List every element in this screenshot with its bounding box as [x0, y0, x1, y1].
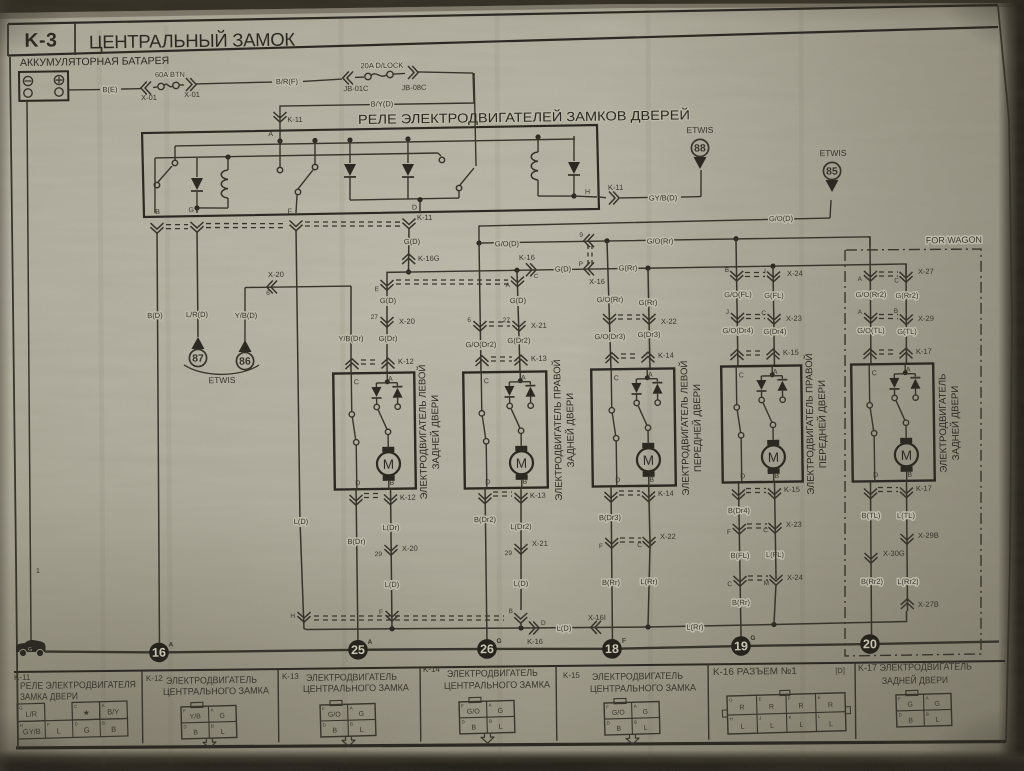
svg-text:ЭЛЕКТРОДВИГАТЕЛЬ: ЭЛЕКТРОДВИГАТЕЛЬ [447, 668, 538, 680]
svg-text:A: A [858, 276, 863, 283]
svg-text:K-16G: K-16G [418, 254, 440, 263]
svg-text:27: 27 [371, 314, 379, 321]
svg-text:F: F [622, 638, 626, 645]
svg-text:G/O(Dr4): G/O(Dr4) [722, 326, 753, 335]
svg-text:Y/B(D): Y/B(D) [235, 311, 258, 320]
svg-text:G(D): G(D) [510, 296, 527, 305]
svg-text:K-14: K-14 [423, 665, 441, 674]
svg-text:D: D [873, 472, 878, 479]
svg-text:X-21: X-21 [532, 539, 548, 548]
svg-text:L: L [221, 729, 225, 736]
svg-text:H: H [20, 723, 23, 728]
svg-text:X-20: X-20 [399, 317, 415, 326]
svg-text:B(Dr3): B(Dr3) [599, 513, 622, 522]
svg-text:B: B [725, 267, 729, 274]
svg-text:G: G [643, 709, 649, 716]
svg-text:G/O(Dr3): G/O(Dr3) [594, 332, 625, 341]
svg-text:16: 16 [152, 646, 166, 660]
svg-text:B: B [649, 477, 654, 484]
svg-text:G(TL): G(TL) [897, 327, 917, 336]
svg-text:L: L [360, 727, 364, 734]
svg-text:GY/B: GY/B [23, 727, 41, 736]
svg-text:K-13: K-13 [530, 491, 546, 500]
svg-text:F: F [322, 706, 325, 711]
svg-text:L(Rr2): L(Rr2) [897, 577, 919, 586]
svg-text:K-15: K-15 [784, 485, 800, 494]
svg-text:G: G [28, 647, 32, 653]
svg-text:C: C [534, 274, 539, 280]
svg-text:L(D): L(D) [385, 580, 400, 589]
svg-text:C: C [872, 370, 877, 377]
svg-text:G(D): G(D) [555, 264, 572, 273]
svg-text:ЦЕНТРАЛЬНОГО ЗАМКА: ЦЕНТРАЛЬНОГО ЗАМКА [590, 683, 697, 695]
svg-text:G(Dr): G(Dr) [379, 334, 398, 343]
svg-text:G(D): G(D) [404, 237, 421, 246]
svg-text:B: B [616, 726, 621, 733]
svg-text:E: E [758, 697, 761, 702]
svg-text:A: A [521, 375, 526, 382]
svg-text:A: A [350, 706, 353, 711]
svg-text:B/R(F): B/R(F) [276, 77, 299, 86]
svg-text:GY/B(D): GY/B(D) [649, 193, 678, 202]
svg-text:ЭЛЕКТРОДВИГАТЕЛЬ: ЭЛЕКТРОДВИГАТЕЛЬ [592, 671, 683, 683]
svg-text:B: B [908, 717, 913, 724]
svg-text:A: A [210, 708, 213, 713]
svg-text:B(TL): B(TL) [862, 511, 881, 520]
svg-text:M: M [516, 456, 527, 471]
svg-text:A: A [368, 639, 373, 646]
svg-text:ЗАМКА ДВЕРИ: ЗАМКА ДВЕРИ [20, 691, 78, 703]
svg-text:ЦЕНТРАЛЬНОГО ЗАМКА: ЦЕНТРАЛЬНОГО ЗАМКА [163, 686, 270, 698]
svg-text:★: ★ [83, 708, 90, 717]
svg-text:X-01: X-01 [141, 93, 157, 102]
svg-text:L: L [57, 726, 61, 735]
svg-text:X-16I: X-16I [588, 613, 606, 622]
svg-text:ЭЛЕКТРОДВИГАТЕЛЬ ПРАВОЙ: ЭЛЕКТРОДВИГАТЕЛЬ ПРАВОЙ [803, 353, 817, 494]
svg-text:B: B [155, 209, 160, 216]
svg-text:B: B [926, 712, 929, 717]
svg-text:G/O(Dr2): G/O(Dr2) [465, 340, 496, 349]
svg-text:H: H [730, 716, 733, 721]
svg-text:G/O: G/O [612, 709, 626, 716]
svg-text:ПЕРЕДНЕЙ ДВЕРИ: ПЕРЕДНЕЙ ДВЕРИ [691, 384, 704, 472]
svg-text:K-16: K-16 [527, 637, 543, 646]
svg-text:G/O(D): G/O(D) [769, 214, 794, 223]
svg-text:X-20: X-20 [268, 270, 284, 279]
svg-text:27: 27 [503, 317, 511, 324]
svg-text:88: 88 [694, 142, 706, 154]
svg-text:F: F [379, 609, 383, 616]
svg-text:G: G [359, 711, 365, 718]
svg-text:K-17: K-17 [916, 484, 932, 493]
svg-text:R: R [828, 702, 833, 709]
svg-text:D: D [541, 620, 546, 627]
svg-text:B: B [389, 480, 394, 487]
svg-text:K-11: K-11 [417, 213, 432, 222]
svg-text:АККУМУЛЯТОРНАЯ БАТАРЕЯ: АККУМУЛЯТОРНАЯ БАТАРЕЯ [20, 55, 169, 69]
svg-text:B(E): B(E) [102, 85, 118, 94]
svg-text:X-24: X-24 [787, 269, 803, 278]
svg-text:G(Rr): G(Rr) [619, 263, 638, 272]
svg-text:L(Dr): L(Dr) [382, 523, 400, 532]
svg-text:G(Dr2): G(Dr2) [507, 336, 531, 345]
svg-text:ЭЛЕКТРОДВИГАТЕЛЬ ЛЕВОЙ: ЭЛЕКТРОДВИГАТЕЛЬ ЛЕВОЙ [678, 361, 692, 496]
svg-text:B: B [489, 719, 492, 724]
svg-text:G/O(TL): G/O(TL) [857, 326, 885, 335]
svg-text:G/O: G/O [467, 708, 481, 715]
svg-text:K-13: K-13 [531, 354, 547, 363]
svg-text:B: B [350, 722, 353, 727]
svg-text:G: G [219, 713, 225, 720]
svg-text:A: A [506, 282, 511, 289]
svg-text:ETWIS: ETWIS [819, 148, 846, 158]
svg-text:20: 20 [863, 637, 877, 651]
svg-text:F: F [727, 529, 731, 536]
svg-text:C: C [763, 527, 768, 534]
svg-text:X-23: X-23 [786, 314, 802, 323]
svg-text:G(D): G(D) [380, 296, 397, 305]
svg-text:F: F [183, 708, 186, 713]
svg-text:G/O(Rr2): G/O(Rr2) [855, 290, 886, 299]
svg-text:26: 26 [480, 642, 494, 656]
svg-text:F: F [599, 543, 603, 550]
svg-text:L/R(D): L/R(D) [186, 310, 209, 319]
svg-text:R: R [769, 704, 774, 711]
svg-text:G: G [84, 726, 90, 735]
svg-text:C: C [484, 378, 489, 385]
svg-text:M: M [643, 453, 654, 468]
svg-text:G(Rr2): G(Rr2) [895, 291, 919, 300]
svg-text:РЕЛЕ ЭЛЕКТРОДВИГАТЕЛЯ: РЕЛЕ ЭЛЕКТРОДВИГАТЕЛЯ [20, 679, 136, 692]
svg-text:K-16 РАЗЪЕМ №1: K-16 РАЗЪЕМ №1 [713, 666, 797, 678]
svg-text:K-11: K-11 [287, 115, 302, 124]
svg-text:I: I [764, 268, 766, 275]
svg-text:D: D [355, 480, 360, 487]
svg-text:R: R [739, 705, 744, 712]
svg-text:L: L [499, 724, 503, 731]
svg-text:G: G [907, 701, 913, 708]
svg-text:X-30G: X-30G [883, 549, 905, 558]
svg-text:ETWIS: ETWIS [208, 375, 235, 385]
svg-text:G/O: G/O [328, 711, 342, 718]
svg-text:G: G [934, 701, 940, 708]
svg-text:A: A [773, 369, 778, 376]
svg-text:19: 19 [734, 639, 748, 653]
svg-text:D: D [740, 473, 745, 480]
svg-text:Y/B: Y/B [190, 713, 202, 720]
svg-text:B: B [634, 720, 637, 725]
svg-text:ЦЕНТРАЛЬНОГО ЗАМКА: ЦЕНТРАЛЬНОГО ЗАМКА [444, 679, 551, 691]
svg-text:JB-01C: JB-01C [343, 84, 369, 93]
svg-text:ПЕРЕДНЕЙ ДВЕРИ: ПЕРЕДНЕЙ ДВЕРИ [816, 380, 829, 468]
svg-text:C: C [739, 372, 744, 379]
svg-text:B: B [522, 479, 527, 486]
svg-text:25: 25 [351, 643, 365, 657]
svg-text:D: D [412, 205, 417, 212]
svg-text:C: C [354, 379, 359, 386]
svg-text:A: A [489, 703, 492, 708]
svg-text:B: B [509, 608, 513, 615]
svg-text:86: 86 [239, 356, 251, 368]
svg-text:B(FL): B(FL) [731, 551, 750, 560]
svg-text:B: B [102, 721, 105, 726]
svg-text:G(Rr): G(Rr) [639, 298, 658, 307]
svg-text:F: F [47, 722, 50, 727]
svg-text:B: B [332, 728, 337, 735]
svg-text:X-16: X-16 [589, 277, 605, 286]
svg-text:L: L [799, 722, 803, 729]
svg-text:B: B [774, 473, 779, 480]
svg-text:ЭЛЕКТРОДВИГАТЕЛЬ ЛЕВОЙ: ЭЛЕКТРОДВИГАТЕЛЬ ЛЕВОЙ [416, 364, 430, 499]
svg-text:60A BTN: 60A BTN [155, 70, 185, 79]
svg-text:E: E [375, 286, 380, 293]
svg-text:6: 6 [467, 317, 471, 324]
svg-text:B: B [907, 472, 912, 479]
svg-text:1: 1 [36, 568, 40, 575]
svg-text:A: A [906, 367, 911, 374]
svg-text:X-27B: X-27B [918, 600, 939, 609]
svg-text:Y/B(Dr): Y/B(Dr) [338, 334, 364, 343]
svg-text:L(D): L(D) [514, 579, 529, 588]
svg-text:X-24: X-24 [787, 573, 803, 582]
svg-text:K: K [789, 715, 792, 720]
svg-text:B/Y(D): B/Y(D) [371, 99, 394, 108]
svg-text:G(Dr4): G(Dr4) [763, 327, 787, 336]
svg-text:G: G [750, 635, 755, 642]
svg-text:A: A [268, 131, 273, 138]
svg-text:G: G [496, 638, 501, 645]
svg-text:B(Dr): B(Dr) [347, 537, 366, 546]
svg-text:X-23: X-23 [786, 520, 802, 529]
svg-text:G/O(Rr): G/O(Rr) [597, 295, 624, 304]
svg-text:K-15: K-15 [563, 671, 581, 680]
svg-text:G: G [19, 705, 23, 710]
svg-text:B(Dr2): B(Dr2) [474, 515, 497, 524]
svg-text:X-29B: X-29B [918, 531, 939, 540]
svg-text:L/R: L/R [25, 709, 38, 718]
svg-text:B(Rr): B(Rr) [732, 598, 751, 607]
svg-text:G/O(D): G/O(D) [495, 239, 520, 248]
svg-text:X-27: X-27 [918, 267, 934, 276]
svg-text:R: R [798, 703, 803, 710]
svg-text:ЦЕНТРАЛЬНОГО ЗАМКА: ЦЕНТРАЛЬНОГО ЗАМКА [303, 683, 410, 695]
svg-text:C: C [614, 375, 619, 382]
svg-text:X-01: X-01 [184, 90, 200, 99]
svg-text:G/O(FL): G/O(FL) [724, 290, 752, 299]
svg-text:X-22: X-22 [660, 532, 676, 541]
svg-text:L: L [829, 721, 833, 728]
svg-text:L(Rr): L(Rr) [640, 577, 658, 586]
svg-text:18: 18 [605, 642, 619, 656]
svg-text:F: F [606, 704, 609, 709]
svg-text:L: L [740, 724, 744, 731]
svg-text:C: C [727, 581, 732, 588]
svg-text:ЗАДНЕЙ ДВЕРИ: ЗАДНЕЙ ДВЕРИ [882, 674, 948, 687]
svg-text:G: G [729, 697, 733, 702]
svg-text:C: C [761, 310, 766, 317]
svg-text:K-17: K-17 [916, 347, 932, 356]
svg-text:X-29: X-29 [918, 314, 934, 323]
svg-text:A: A [169, 641, 174, 648]
svg-text:C: C [894, 277, 899, 284]
svg-text:B/Y: B/Y [107, 707, 119, 716]
svg-text:ЭЛЕКТРОДВИГАТЕЛЬ ПРАВОЙ: ЭЛЕКТРОДВИГАТЕЛЬ ПРАВОЙ [551, 359, 565, 500]
svg-text:B(Dr4): B(Dr4) [728, 506, 751, 515]
svg-text:F: F [288, 208, 292, 215]
svg-text:L(D): L(D) [294, 517, 309, 526]
svg-text:B(Rr): B(Rr) [602, 578, 621, 587]
svg-text:K-16: K-16 [519, 253, 535, 262]
svg-text:K-3: K-3 [24, 29, 57, 51]
svg-text:20A D/LOCK: 20A D/LOCK [360, 61, 403, 71]
svg-text:M: M [768, 450, 779, 465]
svg-text:D: D [615, 477, 620, 484]
svg-text:H: H [585, 189, 590, 196]
svg-text:K-13: K-13 [282, 672, 300, 681]
svg-text:ЗАДНЕЙ ДВЕРИ: ЗАДНЕЙ ДВЕРИ [564, 393, 577, 468]
svg-text:FOR WAGON: FOR WAGON [926, 235, 982, 246]
svg-text:K-11: K-11 [608, 183, 623, 192]
svg-text:G(Dr3): G(Dr3) [637, 330, 661, 339]
svg-text:M: M [901, 448, 912, 463]
svg-text:G(FL): G(FL) [764, 291, 784, 300]
svg-text:X-21: X-21 [531, 321, 547, 330]
svg-text:A: A [858, 309, 863, 316]
svg-text:J: J [726, 309, 729, 316]
svg-text:A: A [102, 703, 105, 708]
svg-text:L(Rr): L(Rr) [686, 622, 704, 631]
svg-text:A: A [388, 376, 393, 383]
svg-text:K-17 ЭЛЕКТРОДВИГАТЕЛЬ: K-17 ЭЛЕКТРОДВИГАТЕЛЬ [858, 661, 972, 674]
svg-text:A: A [634, 704, 637, 709]
svg-text:B: B [111, 725, 116, 734]
svg-text:L: L [644, 725, 648, 732]
svg-text:K-14: K-14 [658, 489, 674, 498]
svg-text:ЦЕНТРАЛЬНЫЙ ЗАМОК: ЦЕНТРАЛЬНЫЙ ЗАМОК [89, 29, 296, 53]
svg-text:B(D): B(D) [147, 311, 163, 320]
svg-text:L: L [770, 723, 774, 730]
svg-text:K-14: K-14 [658, 351, 674, 360]
svg-text:ЗАДНЕЙ ДВЕРИ: ЗАДНЕЙ ДВЕРИ [949, 386, 962, 461]
svg-text:29: 29 [505, 550, 513, 557]
svg-text:G: G [497, 708, 503, 715]
svg-text:L: L [936, 717, 940, 724]
svg-text:B: B [193, 729, 198, 736]
svg-text:X-22: X-22 [661, 317, 677, 326]
svg-text:F: F [461, 703, 464, 708]
svg-text:P: P [579, 261, 583, 268]
svg-text:F: F [898, 696, 901, 701]
svg-text:J: J [759, 716, 761, 721]
svg-text:JB-08C: JB-08C [401, 83, 427, 92]
svg-text:29: 29 [375, 551, 383, 558]
svg-text:B: B [471, 724, 476, 731]
svg-text:L(TL): L(TL) [897, 511, 916, 520]
svg-text:X-20: X-20 [402, 544, 418, 553]
svg-text:D: D [485, 479, 490, 486]
svg-text:[D]: [D] [835, 666, 845, 675]
svg-text:G: G [188, 207, 194, 214]
svg-text:K-15: K-15 [783, 348, 799, 357]
svg-text:85: 85 [826, 166, 838, 178]
svg-text:ЗАДНЕЙ ДВЕРИ: ЗАДНЕЙ ДВЕРИ [429, 395, 442, 470]
svg-text:ЭЛЕКТРОДВИГАТЕЛЬ: ЭЛЕКТРОДВИГАТЕЛЬ [937, 373, 949, 472]
svg-text:F: F [788, 696, 791, 701]
svg-text:H: H [290, 613, 295, 620]
svg-text:A: A [925, 696, 928, 701]
svg-text:B: B [211, 724, 214, 729]
svg-text:6: 6 [266, 290, 270, 297]
svg-text:E: E [817, 695, 820, 700]
svg-text:M: M [383, 457, 394, 472]
svg-text:L(Dr2): L(Dr2) [510, 522, 532, 531]
svg-text:C: C [637, 542, 642, 549]
svg-text:K-12: K-12 [400, 493, 416, 502]
svg-text:87: 87 [192, 352, 204, 364]
svg-text:A: A [648, 372, 653, 379]
svg-text:M: M [764, 580, 770, 587]
svg-text:B(Rr2): B(Rr2) [861, 577, 884, 586]
svg-text:9: 9 [579, 232, 583, 239]
svg-text:K-12: K-12 [146, 674, 164, 683]
svg-text:ETWIS: ETWIS [686, 125, 713, 135]
svg-text:L(D): L(D) [557, 624, 572, 633]
svg-text:K-12: K-12 [398, 357, 414, 366]
svg-text:G/O(Rr): G/O(Rr) [647, 236, 674, 245]
